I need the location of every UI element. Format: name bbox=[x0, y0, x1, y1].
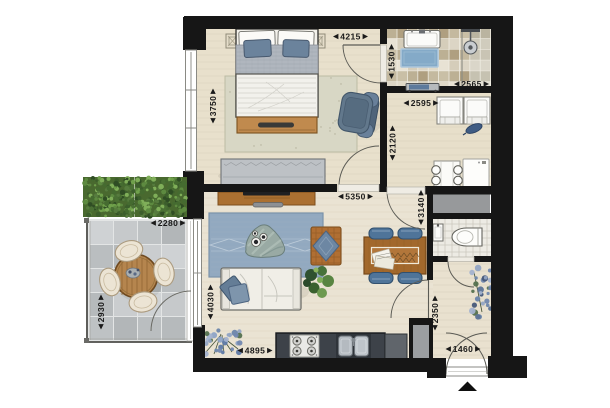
svg-text:4215: 4215 bbox=[340, 32, 361, 42]
svg-text:5350: 5350 bbox=[345, 192, 366, 202]
svg-text:2565: 2565 bbox=[461, 79, 482, 89]
svg-text:2120: 2120 bbox=[388, 133, 398, 154]
svg-text:4895: 4895 bbox=[245, 346, 266, 356]
svg-text:3140: 3140 bbox=[416, 197, 426, 218]
svg-text:2595: 2595 bbox=[411, 98, 432, 108]
svg-text:1460: 1460 bbox=[453, 344, 474, 354]
svg-text:3750: 3750 bbox=[208, 96, 218, 117]
svg-text:1530: 1530 bbox=[387, 51, 397, 72]
svg-text:2280: 2280 bbox=[158, 218, 179, 228]
svg-text:2350: 2350 bbox=[430, 303, 440, 324]
svg-text:2930: 2930 bbox=[96, 302, 106, 323]
svg-text:4030: 4030 bbox=[206, 292, 216, 313]
